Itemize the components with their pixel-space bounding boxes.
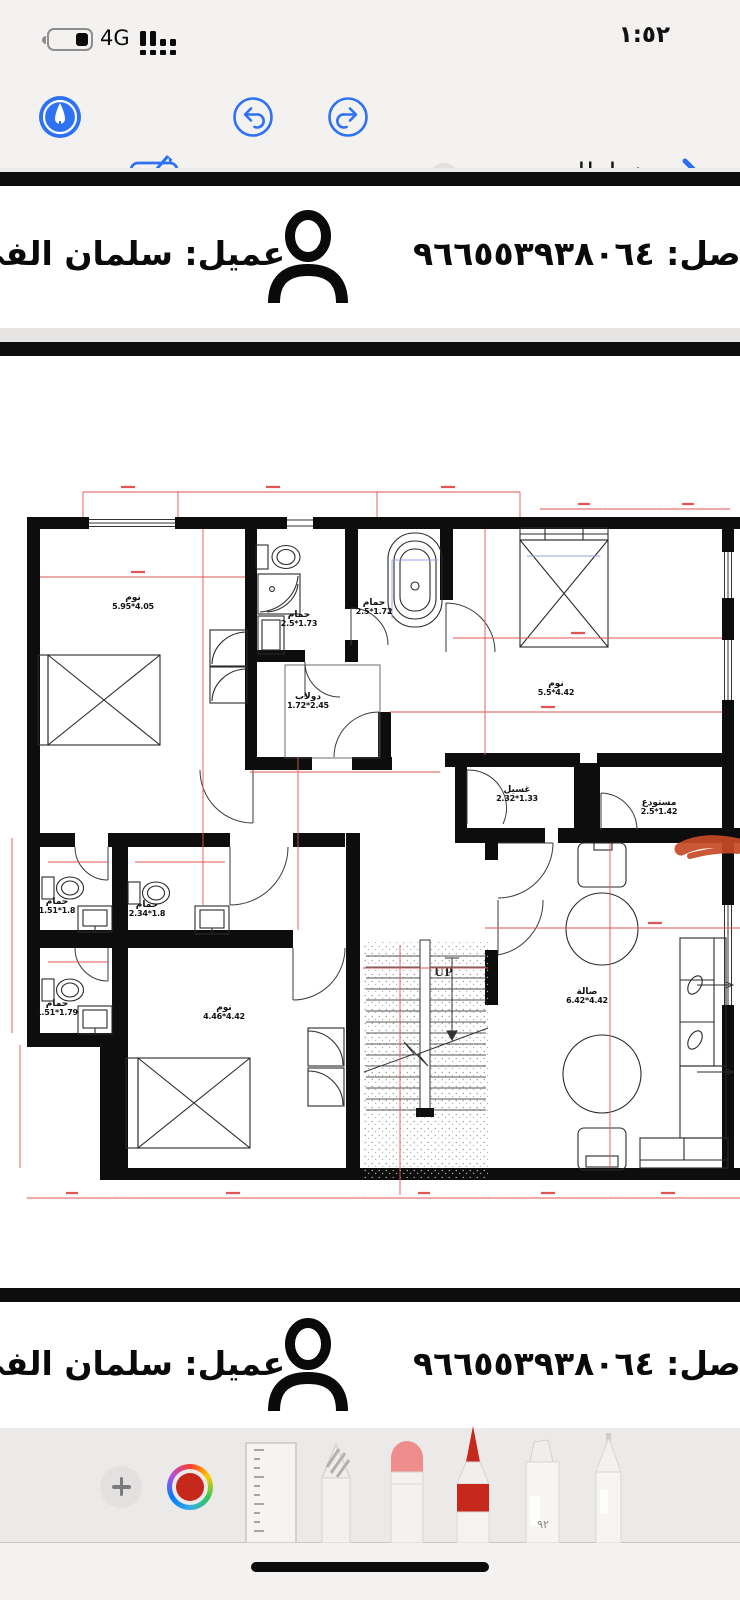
doc-header-band-2: اصل: ٩٦٦٥٥٣٩٣٨٠٦٤ عميل: سلمان الفي [0,1302,740,1428]
stairs [364,940,488,1178]
clock: ١:٥٢ [619,22,670,48]
marker-opacity-label: ٩٢ [537,1518,549,1531]
floor-plan-drawing: UP نوم 5.95*4.05 حمام 2.5*1.73 حمام 2.5*… [0,356,740,1288]
pen-tool[interactable] [588,1432,630,1543]
room-size: 5.5*4.42 [538,688,575,697]
room-size: 1.72*2.45 [287,701,329,710]
room-size: 1.51*1.79 [36,1008,78,1017]
eraser-tool[interactable] [386,1438,428,1543]
room-size: 5.95*4.05 [112,602,154,611]
stairs-up-label: UP [434,964,453,979]
colored-pencil-tool-selected[interactable] [452,1420,494,1543]
ruler-tool[interactable] [244,1442,298,1543]
battery-icon [42,27,98,53]
client-name: عميل: سلمان الفي [0,1344,285,1383]
plan-page-border-top [0,342,740,356]
undo-button[interactable] [233,97,273,137]
plan-page-border-bottom [0,1288,740,1302]
room-size: 4.46*4.42 [203,1012,245,1021]
markup-nav-toolbar: مخططات م... [0,60,740,169]
room-size: 2.5*1.42 [641,807,678,816]
marker-tool[interactable]: ٩٢ [520,1438,564,1543]
room-size: 2.34*1.8 [129,909,166,918]
status-bar: 4G ١:٥٢ [0,0,740,60]
room-size: 2.32*1.33 [496,794,538,803]
network-type-label: 4G [100,26,130,50]
page-border-top [0,172,740,186]
client-name: عميل: سلمان الفي [0,234,285,273]
room-size: 1.51*1.8 [39,906,76,915]
room-size: 6.42*4.42 [566,996,608,1005]
doc-header-band: اصل: ٩٦٦٥٥٣٩٣٨٠٦٤ عميل: سلمان الفي [0,186,740,328]
plus-icon [120,1477,124,1496]
selected-color-swatch [176,1473,204,1501]
floor-plan-canvas[interactable]: UP نوم 5.95*4.05 حمام 2.5*1.73 حمام 2.5*… [0,356,740,1288]
contact-number: اصل: ٩٦٦٥٥٣٩٣٨٠٦٤ [413,234,740,273]
redo-button[interactable] [328,97,368,137]
cellular-signal-icon [140,28,184,56]
home-indicator[interactable] [251,1562,489,1572]
pencil-tool[interactable] [314,1440,358,1543]
page-gap [0,328,740,342]
room-size: 2.5*1.73 [281,619,318,628]
markup-pen-button[interactable] [38,95,82,139]
room-size: 2.5*1.72 [356,607,393,616]
contact-number: اصل: ٩٦٦٥٥٣٩٣٨٠٦٤ [413,1344,740,1383]
color-picker-button[interactable] [167,1464,213,1510]
